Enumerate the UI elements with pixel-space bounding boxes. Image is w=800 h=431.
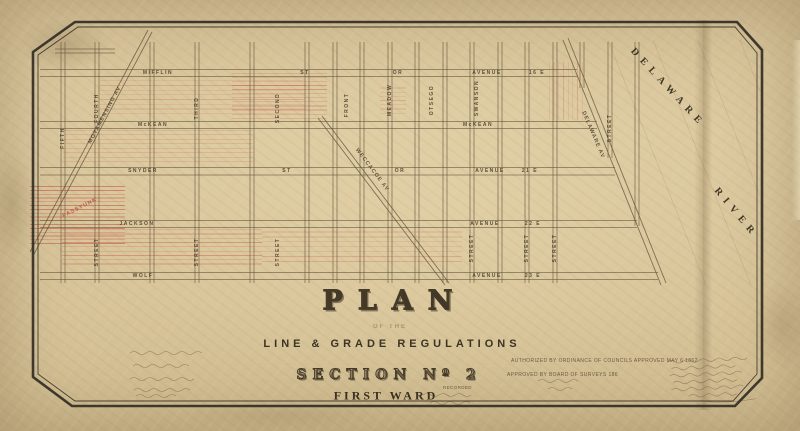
street-label-vertical: THIRD <box>194 97 200 120</box>
street-label-vertical: STREET <box>194 238 200 267</box>
river-shore-lines <box>608 40 760 285</box>
street-label: AVENUE <box>475 168 504 174</box>
street-label: OR <box>395 168 406 174</box>
street-label: McKEAN <box>138 122 168 128</box>
street-label: 16 E <box>529 70 545 76</box>
street-label: ST <box>300 70 309 76</box>
map-title-ofthe: OF THE <box>373 324 407 330</box>
street-label-vertical: STREET <box>275 238 281 267</box>
street-label: McKEAN <box>463 122 493 128</box>
street-label: MIFFLIN <box>143 70 173 76</box>
street-label: OR <box>393 70 404 76</box>
street-label: AVENUE <box>470 221 499 227</box>
scanned-map-sheet: MIFFLIN ST OR AVENUE 16 E McKEAN McKEAN … <box>0 0 800 431</box>
street-label-vertical: STREET <box>524 234 530 263</box>
map-section-label: SECTION Nº 2 <box>296 367 481 383</box>
street-label: JACKSON <box>120 221 155 227</box>
map-ward-label: FIRST WARD <box>334 389 439 404</box>
map-subtitle: LINE & GRADE REGULATIONS <box>263 338 520 350</box>
street-label-vertical: SWANSON <box>474 80 480 116</box>
recorded-label: RECORDED <box>443 385 472 390</box>
street-label-vertical: FRONT <box>344 93 350 118</box>
street-label: WOLF <box>133 273 154 279</box>
street-label: 22 E <box>525 221 541 227</box>
street-label-vertical: STREET <box>469 234 475 263</box>
map-title: PLAN <box>323 286 468 317</box>
street-label-vertical: SECOND <box>275 93 281 123</box>
street-label-vertical: STREET <box>94 238 100 267</box>
street-label-vertical: STREET <box>607 114 613 143</box>
street-label-vertical: FIFTH <box>60 127 66 149</box>
approval-line-2: APPROVED BY BOARD OF SURVEYS 186 <box>507 372 618 378</box>
street-label-vertical: MEADOW <box>387 84 393 116</box>
street-label-vertical: OTSEGO <box>429 85 435 115</box>
streets-diagonal <box>30 30 666 285</box>
street-label: 23 E <box>525 273 541 279</box>
streets-horizontal <box>40 49 658 280</box>
approval-line-1: AUTHORIZED BY ORDINANCE OF COUNCILS APPR… <box>511 358 698 364</box>
street-label: SNYDER <box>128 168 158 174</box>
street-label-vertical: STREET <box>552 234 558 263</box>
handwritten-note-bottom-left <box>130 352 202 398</box>
street-label: AVENUE <box>472 273 501 279</box>
street-label: AVENUE <box>472 70 501 76</box>
street-label: 21 E <box>522 168 538 174</box>
street-label: ST <box>282 168 291 174</box>
